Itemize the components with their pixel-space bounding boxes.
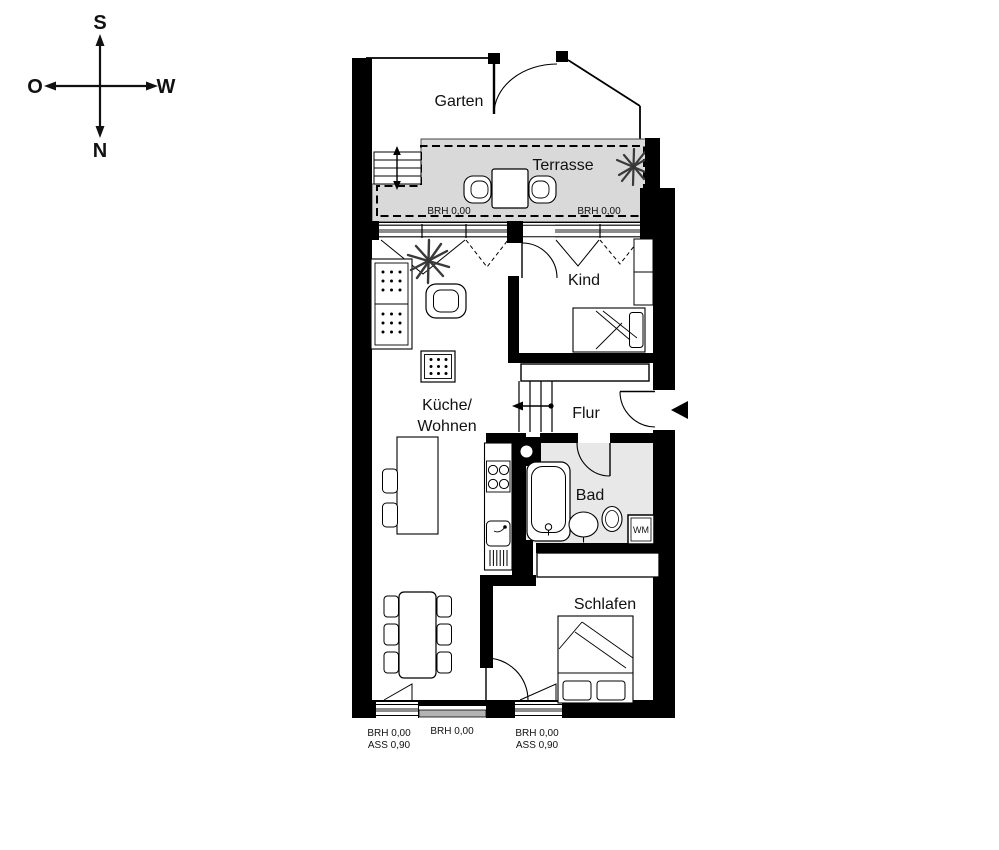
compass-east-label: O xyxy=(27,76,43,98)
wall-bath-north-left xyxy=(540,433,578,443)
armchair-pouf xyxy=(421,351,455,382)
island-stool xyxy=(383,469,398,493)
toilet xyxy=(602,507,622,532)
compass-south-label: S xyxy=(93,12,106,34)
wall-bedroom-west xyxy=(480,578,493,668)
wall-corner-northeast xyxy=(640,188,675,222)
compass-rose: S N O W xyxy=(27,12,175,162)
child-room-area: Kind xyxy=(568,239,653,352)
hall-area: Flur xyxy=(512,364,649,432)
sill-label-south-left-2: ASS 0,90 xyxy=(368,740,411,751)
washing-machine: WM xyxy=(628,515,654,544)
window-south-middle xyxy=(419,706,486,720)
bathroom-label: Bad xyxy=(576,487,604,504)
wall-bath-north-right xyxy=(610,433,655,443)
window-north-right xyxy=(555,224,640,238)
bedroom-area: Schlafen xyxy=(537,553,659,703)
compass-arrow-down-icon xyxy=(96,126,105,138)
terrace-chair-left xyxy=(464,176,491,203)
wall-pier-north-left xyxy=(372,221,379,240)
living-plant-icon xyxy=(408,240,449,283)
window-opening-indicators-north xyxy=(381,240,639,274)
wall-terrace-east xyxy=(645,138,660,194)
terrace-stairs-arrow-up-icon xyxy=(393,146,401,155)
dining-chair xyxy=(384,596,399,617)
duct-pipe-icon xyxy=(521,446,533,458)
north-band-blank-panel xyxy=(523,224,555,238)
dining-chair xyxy=(384,624,399,645)
entry-arrow-icon xyxy=(671,401,688,419)
wall-pier-north-right xyxy=(640,221,655,240)
bathtub xyxy=(527,462,570,541)
wall-pier-north-mid xyxy=(507,221,523,243)
door-entry xyxy=(620,392,688,428)
floorplan-drawing: S N O W Garten xyxy=(0,0,999,850)
washing-machine-label: WM xyxy=(633,525,649,535)
hall-closet xyxy=(521,364,649,381)
garden-gate-post-right xyxy=(556,51,568,62)
hall-stairs-arrow-icon xyxy=(512,402,523,411)
garden-gate-post-left xyxy=(488,53,500,64)
south-window-band: BRH 0,00 ASS 0,90 BRH 0,00 BRH 0,00 ASS … xyxy=(367,684,562,751)
door-kind xyxy=(522,243,557,278)
kind-wardrobe-upper xyxy=(634,239,653,272)
wall-kind-west xyxy=(508,276,519,355)
bedroom-label: Schlafen xyxy=(574,596,636,613)
kitchen-counter xyxy=(485,443,513,570)
kitchen-living-label-line2: Wohnen xyxy=(417,418,476,435)
garden-fence-diagonal xyxy=(568,60,640,106)
kitchen-living-label-line1: Küche/ xyxy=(422,397,472,414)
sill-label-south-left-1: BRH 0,00 xyxy=(367,728,411,739)
sofa xyxy=(371,259,412,349)
wall-west xyxy=(352,58,372,718)
window-opening-indicator xyxy=(384,684,412,700)
sill-label-south-right-2: ASS 0,90 xyxy=(516,740,559,751)
terrace-label: Terrasse xyxy=(532,157,593,174)
kitchen-island xyxy=(383,437,439,534)
wall-stub-bath-bedroom xyxy=(519,540,533,578)
wall-east-upper xyxy=(653,218,675,390)
hall-stairs xyxy=(512,381,554,432)
sill-label-south-right-1: BRH 0,00 xyxy=(515,728,559,739)
terrace-table xyxy=(492,169,528,208)
window-north-left xyxy=(379,224,508,238)
sill-label-terrace-right: BRH 0,00 xyxy=(577,206,621,217)
terrace-chair-right xyxy=(529,176,556,203)
bedroom-bed xyxy=(558,616,633,703)
kind-wardrobe-lower xyxy=(634,272,653,305)
compass-arrow-left-icon xyxy=(44,82,56,91)
kind-bed xyxy=(573,308,645,352)
child-room-label: Kind xyxy=(568,272,600,289)
island-stool xyxy=(383,503,398,527)
sill-label-south-middle: BRH 0,00 xyxy=(430,726,474,737)
dining-chair xyxy=(384,652,399,673)
coffee-table xyxy=(426,284,466,318)
garden-label: Garten xyxy=(435,93,484,110)
compass-north-label: N xyxy=(93,140,107,162)
dining-chair xyxy=(437,596,452,617)
terrace-stairs xyxy=(374,146,421,190)
garden-area: Garten xyxy=(366,51,640,140)
floorplan-page: S N O W Garten xyxy=(0,0,999,850)
compass-arrow-up-icon xyxy=(96,34,105,46)
compass-west-label: W xyxy=(157,76,176,98)
bedroom-closet xyxy=(537,553,659,577)
hall-label: Flur xyxy=(572,405,600,422)
dining-chair xyxy=(437,652,452,673)
garden-gate-swing-arc xyxy=(494,64,557,114)
dining-table xyxy=(399,592,436,678)
dining-chair xyxy=(437,624,452,645)
wall-kind-south xyxy=(508,353,657,363)
wall-kitchen-back xyxy=(486,433,512,443)
terrace-area: Terrasse BRH 0,00 BRH 0,00 xyxy=(372,139,650,222)
hall-stairs-start-dot xyxy=(548,403,553,408)
sill-label-terrace-left: BRH 0,00 xyxy=(427,206,471,217)
dining-set xyxy=(384,592,452,678)
